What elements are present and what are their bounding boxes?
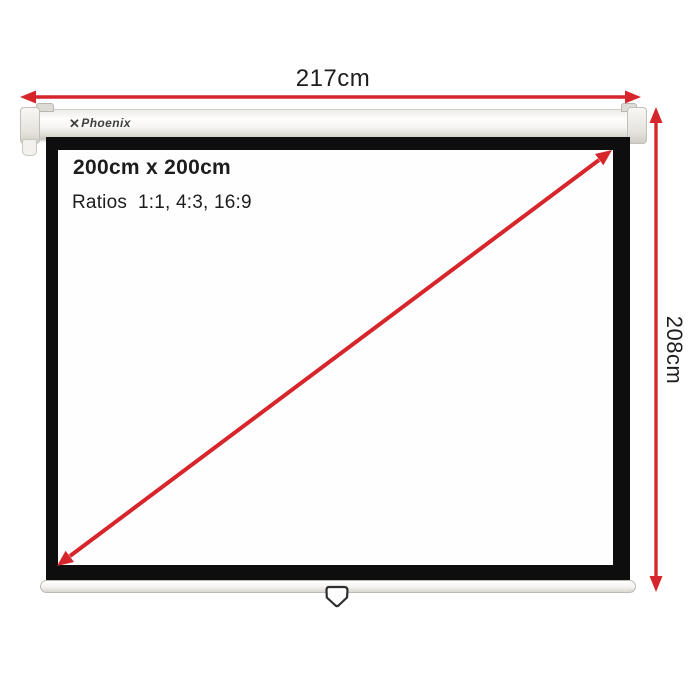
left-end-cap xyxy=(20,107,40,144)
width-dimension-label: 217cm xyxy=(296,65,371,93)
brand-name: Phoenix xyxy=(81,116,130,130)
projection-screen-diagram: 217cm 208cm 112” ✕ Phoenix 200cm x 200cm… xyxy=(0,0,700,700)
screen-roller-casing: ✕ Phoenix xyxy=(22,109,645,140)
screen-size-label: 200cm x 200cm xyxy=(73,156,231,180)
pull-handle-icon xyxy=(323,585,351,611)
left-end-cap-tab xyxy=(22,139,37,156)
brand-logo: ✕ Phoenix xyxy=(69,116,131,130)
aspect-ratios-label: Ratios 1:1, 4:3, 16:9 xyxy=(72,192,252,214)
right-end-cap xyxy=(627,107,647,144)
height-dimension-label: 208cm xyxy=(661,316,687,385)
phoenix-x-icon: ✕ xyxy=(69,117,80,130)
